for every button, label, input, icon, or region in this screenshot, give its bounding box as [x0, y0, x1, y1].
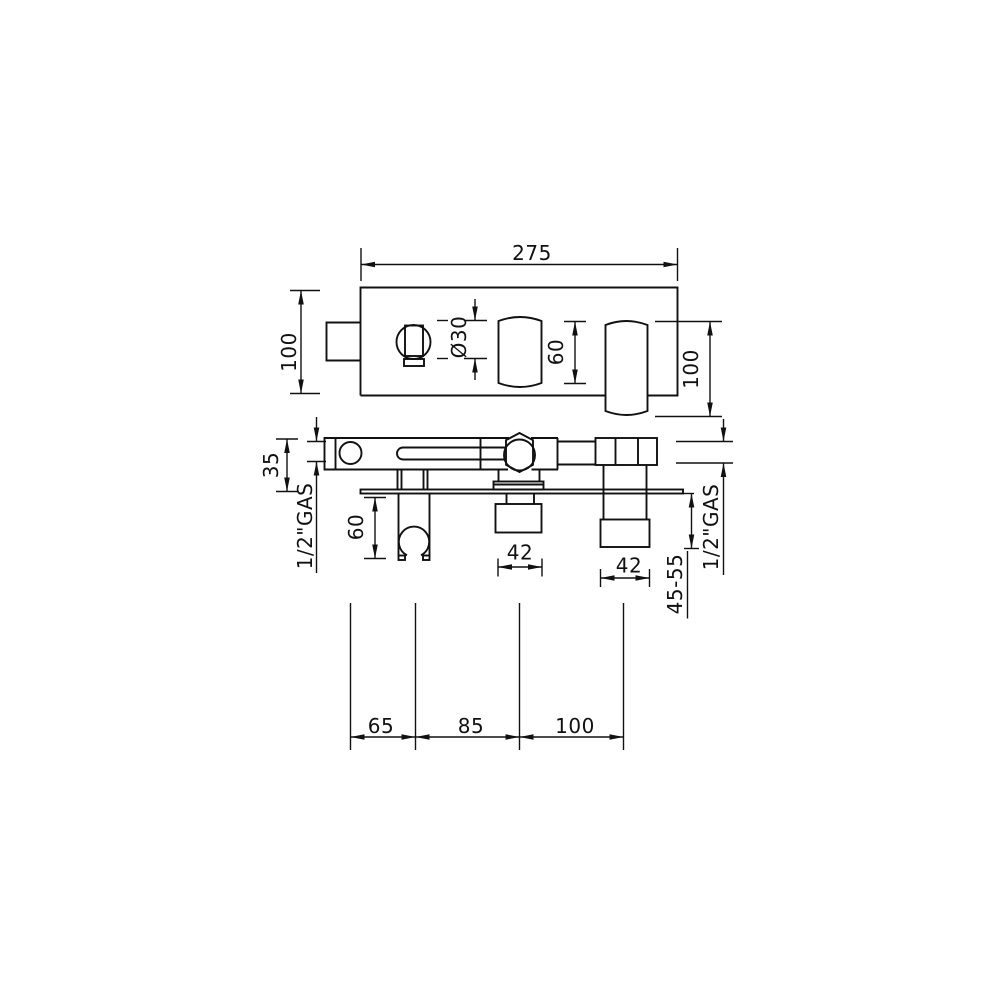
dim-plate-height-label: 100: [277, 332, 301, 372]
dim-outlet-width-label: 42: [507, 541, 533, 565]
control-knob-top-view: [397, 325, 431, 366]
top-view: 275 100 Ø30 60: [277, 241, 722, 417]
dim-wall-projection: 45-55: [663, 494, 699, 619]
dim-knob-diameter-label: Ø30: [447, 316, 471, 359]
dim-inlet-left-label: 1/2"GAS: [293, 483, 317, 570]
dim-spacing-85-label: 85: [458, 714, 484, 738]
dim-spacing-100-label: 100: [555, 714, 595, 738]
dim-holder-drop: 60: [344, 498, 386, 559]
dim-holder-drop-label: 60: [344, 514, 368, 540]
dim-spout-width: 42: [601, 554, 650, 588]
installation-spacing-dims: 65 85 100: [351, 603, 624, 750]
dim-handle-length: 60: [544, 322, 586, 384]
dim-spout-width-label: 42: [616, 554, 642, 578]
dim-spacing-65-label: 65: [368, 714, 394, 738]
wall-plate-top-view: [361, 288, 678, 396]
dim-plate-height: 100: [277, 291, 320, 394]
dim-body-height-label: 35: [259, 452, 283, 478]
body-supports: [398, 470, 428, 490]
dim-overall-width-label: 275: [512, 241, 552, 265]
dim-knob-diameter: Ø30: [437, 299, 487, 380]
technical-drawing: 275 100 Ø30 60: [0, 0, 1000, 1000]
dim-inlet-right-label: 1/2"GAS: [699, 484, 723, 571]
wall-plate-front-view: [361, 490, 684, 494]
dim-inlet-left: 1/2"GAS: [293, 417, 326, 573]
dim-overall-width: 275: [361, 241, 678, 281]
dim-spout-length: 100: [655, 322, 722, 417]
center-outlet: [494, 470, 544, 533]
drawing-canvas: 275 100 Ø30 60: [0, 0, 1000, 1000]
left-port-top-view: [327, 323, 361, 361]
tub-spout-front-view: [601, 465, 650, 547]
dim-spout-length-label: 100: [679, 349, 703, 389]
spout-top-view: [606, 321, 648, 415]
mixer-body-front-view: [325, 433, 658, 472]
dim-handle-length-label: 60: [544, 339, 568, 365]
dim-wall-projection-label: 45-55: [663, 554, 687, 615]
shower-holder-bracket: [399, 494, 430, 561]
handle-top-view: [499, 317, 542, 387]
dim-outlet-width: 42: [498, 541, 542, 577]
dim-inlet-right: 1/2"GAS: [676, 419, 733, 575]
front-view: 35 1/2"GAS 1/2"GAS 60: [259, 417, 733, 619]
